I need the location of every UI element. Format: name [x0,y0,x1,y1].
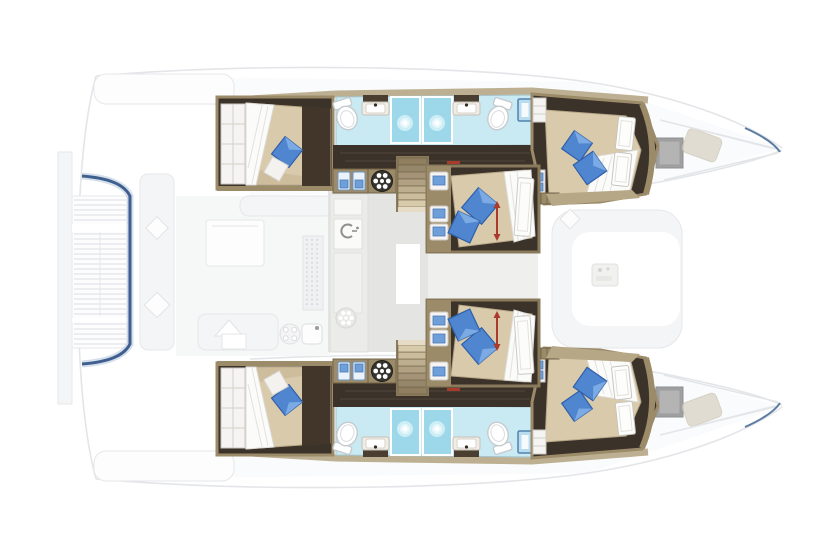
sofa-box [222,334,246,349]
forward-cabin [532,94,658,206]
salon-white-band [396,244,420,304]
locker-unit [353,172,365,190]
galley-appliance [334,199,362,215]
slat-divider [72,224,128,232]
shelf-with-towels [430,172,448,190]
sink-vanity [453,95,480,115]
bow-hatch-inner [659,141,680,165]
center-cabin-lower [427,300,539,391]
stern-cap-bottom [94,451,234,481]
shower-drain-glow [397,115,413,131]
salon-floor-mid [428,250,538,304]
wardrobe-shelves [533,98,546,122]
forward-cockpit-table [592,264,618,286]
bow-hatch-inner [659,390,680,414]
slat-divider [72,318,128,322]
aft-cockpit-bench [140,174,174,350]
cockpit-grill-icon [280,324,300,344]
bed-headboard [302,106,330,186]
floorplan-svg [0,0,834,556]
locker-unit [338,172,350,190]
aft-cabin [217,97,333,191]
shelf-with-towels [430,224,448,240]
forward-cockpit-floor [572,232,680,326]
round-vent-icon [368,169,396,193]
center-cabin-upper [427,161,539,252]
cabin-door [514,178,534,237]
stern-cap-top [94,74,234,104]
sink-vanity [362,95,389,115]
blue-door-inner [522,103,529,117]
stern-step-strip [58,152,72,404]
stove-burner-icon [336,308,356,328]
staircase [396,156,429,212]
galley-cabinet [334,253,362,313]
yacht-floorplan-canvas [0,0,834,556]
shower-drain-glow [429,115,445,131]
cockpit-step-mat [303,236,323,310]
cockpit-table [206,220,264,266]
cabin-sill [217,186,333,191]
cockpit-sofa-top [240,196,334,216]
red-marker [447,161,460,164]
cockpit-sink-icon [302,324,322,344]
bathroom-block [332,95,532,147]
shelf-with-towels [430,206,448,222]
